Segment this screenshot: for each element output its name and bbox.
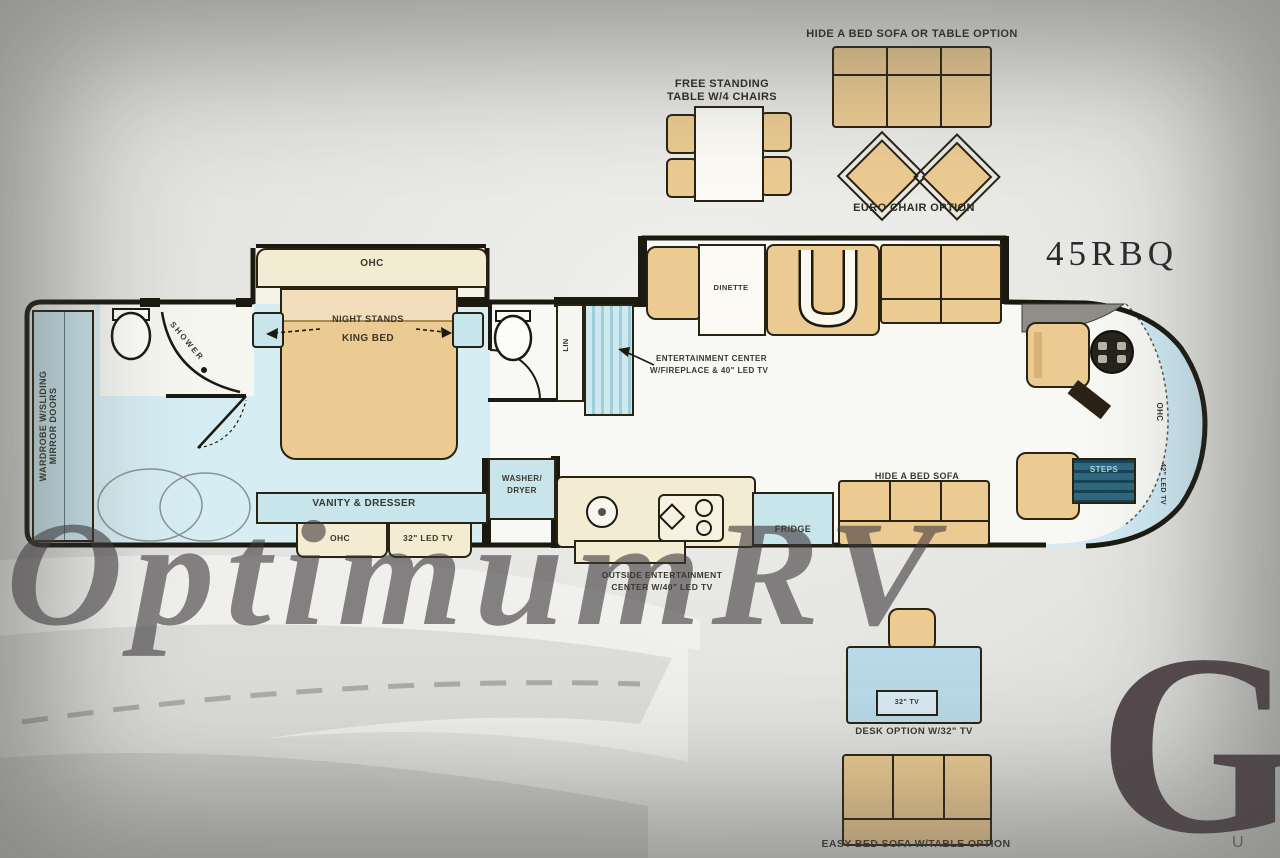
annotation-arrows bbox=[266, 327, 654, 365]
dealer-logo-letter: G bbox=[1098, 596, 1280, 858]
front-ohc-label: OHC bbox=[1155, 384, 1164, 440]
linen-label: LIN bbox=[561, 310, 570, 380]
table-caption-line1: FREE STANDING bbox=[675, 78, 769, 90]
easy-sofa-caption: EASY BED SOFA W/TABLE OPTION bbox=[822, 838, 1011, 850]
watermark: OptimumRV bbox=[6, 488, 947, 660]
front-tv-label: 42" LED TV bbox=[1159, 448, 1166, 520]
steering-wheel bbox=[1091, 331, 1133, 373]
entertainment-label-line2: W/FIREPLACE & 40" LED TV bbox=[650, 366, 768, 375]
washer-label-line1: WASHER/ bbox=[502, 474, 542, 483]
dinette-label: DINETTE bbox=[714, 283, 749, 292]
detail-layer bbox=[0, 0, 1280, 858]
hide-a-bed-label: HIDE A BED SOFA bbox=[875, 471, 959, 481]
u-booth-channel bbox=[806, 250, 850, 320]
king-bed-label: KING BED bbox=[342, 333, 394, 344]
desk-caption: DESK OPTION W/32" TV bbox=[855, 726, 973, 737]
model-title: 45RBQ bbox=[1046, 234, 1178, 274]
night-stands-label: NIGHT STANDS bbox=[332, 314, 404, 324]
cockpit-console bbox=[1068, 380, 1112, 419]
euro-chair-caption: EURO CHAIR OPTION bbox=[853, 202, 975, 214]
steps-label: STEPS bbox=[1090, 465, 1118, 474]
bed-ohc-label: OHC bbox=[360, 258, 383, 269]
floorplan-canvas: STEPS 32" TV bbox=[0, 0, 1280, 858]
top-sofa-caption: HIDE A BED SOFA OR TABLE OPTION bbox=[806, 28, 1017, 40]
desk-tv-label: 32" TV bbox=[895, 699, 919, 706]
table-caption-line2: TABLE W/4 CHAIRS bbox=[667, 91, 777, 103]
corner-letter: U bbox=[1232, 834, 1244, 852]
entertainment-label-line1: ENTERTAINMENT CENTER bbox=[656, 354, 767, 363]
